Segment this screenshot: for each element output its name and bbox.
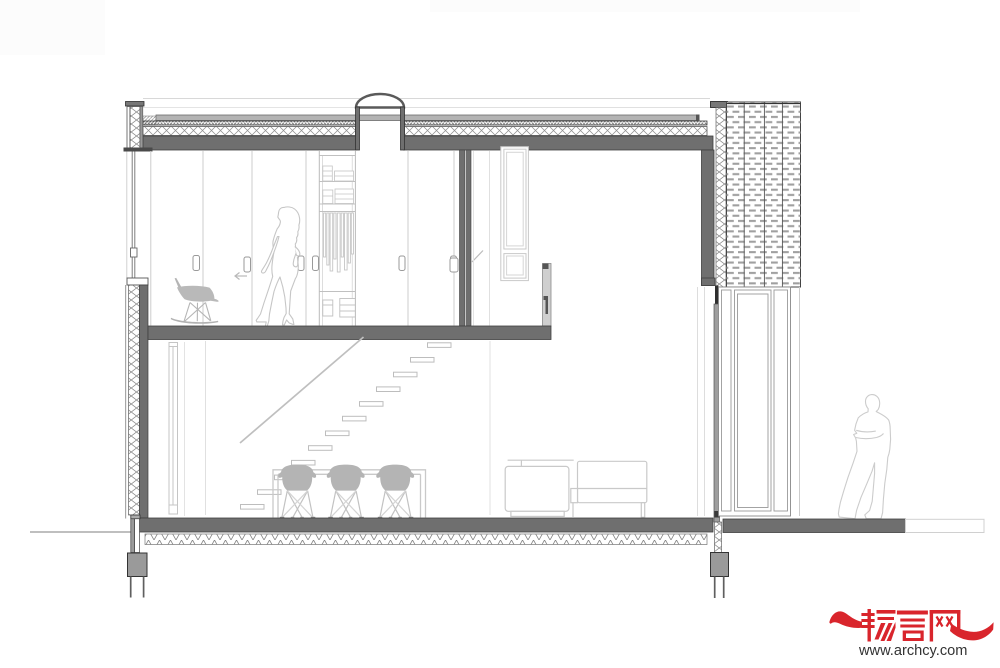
svg-text:www.archcy.com: www.archcy.com xyxy=(858,643,967,659)
